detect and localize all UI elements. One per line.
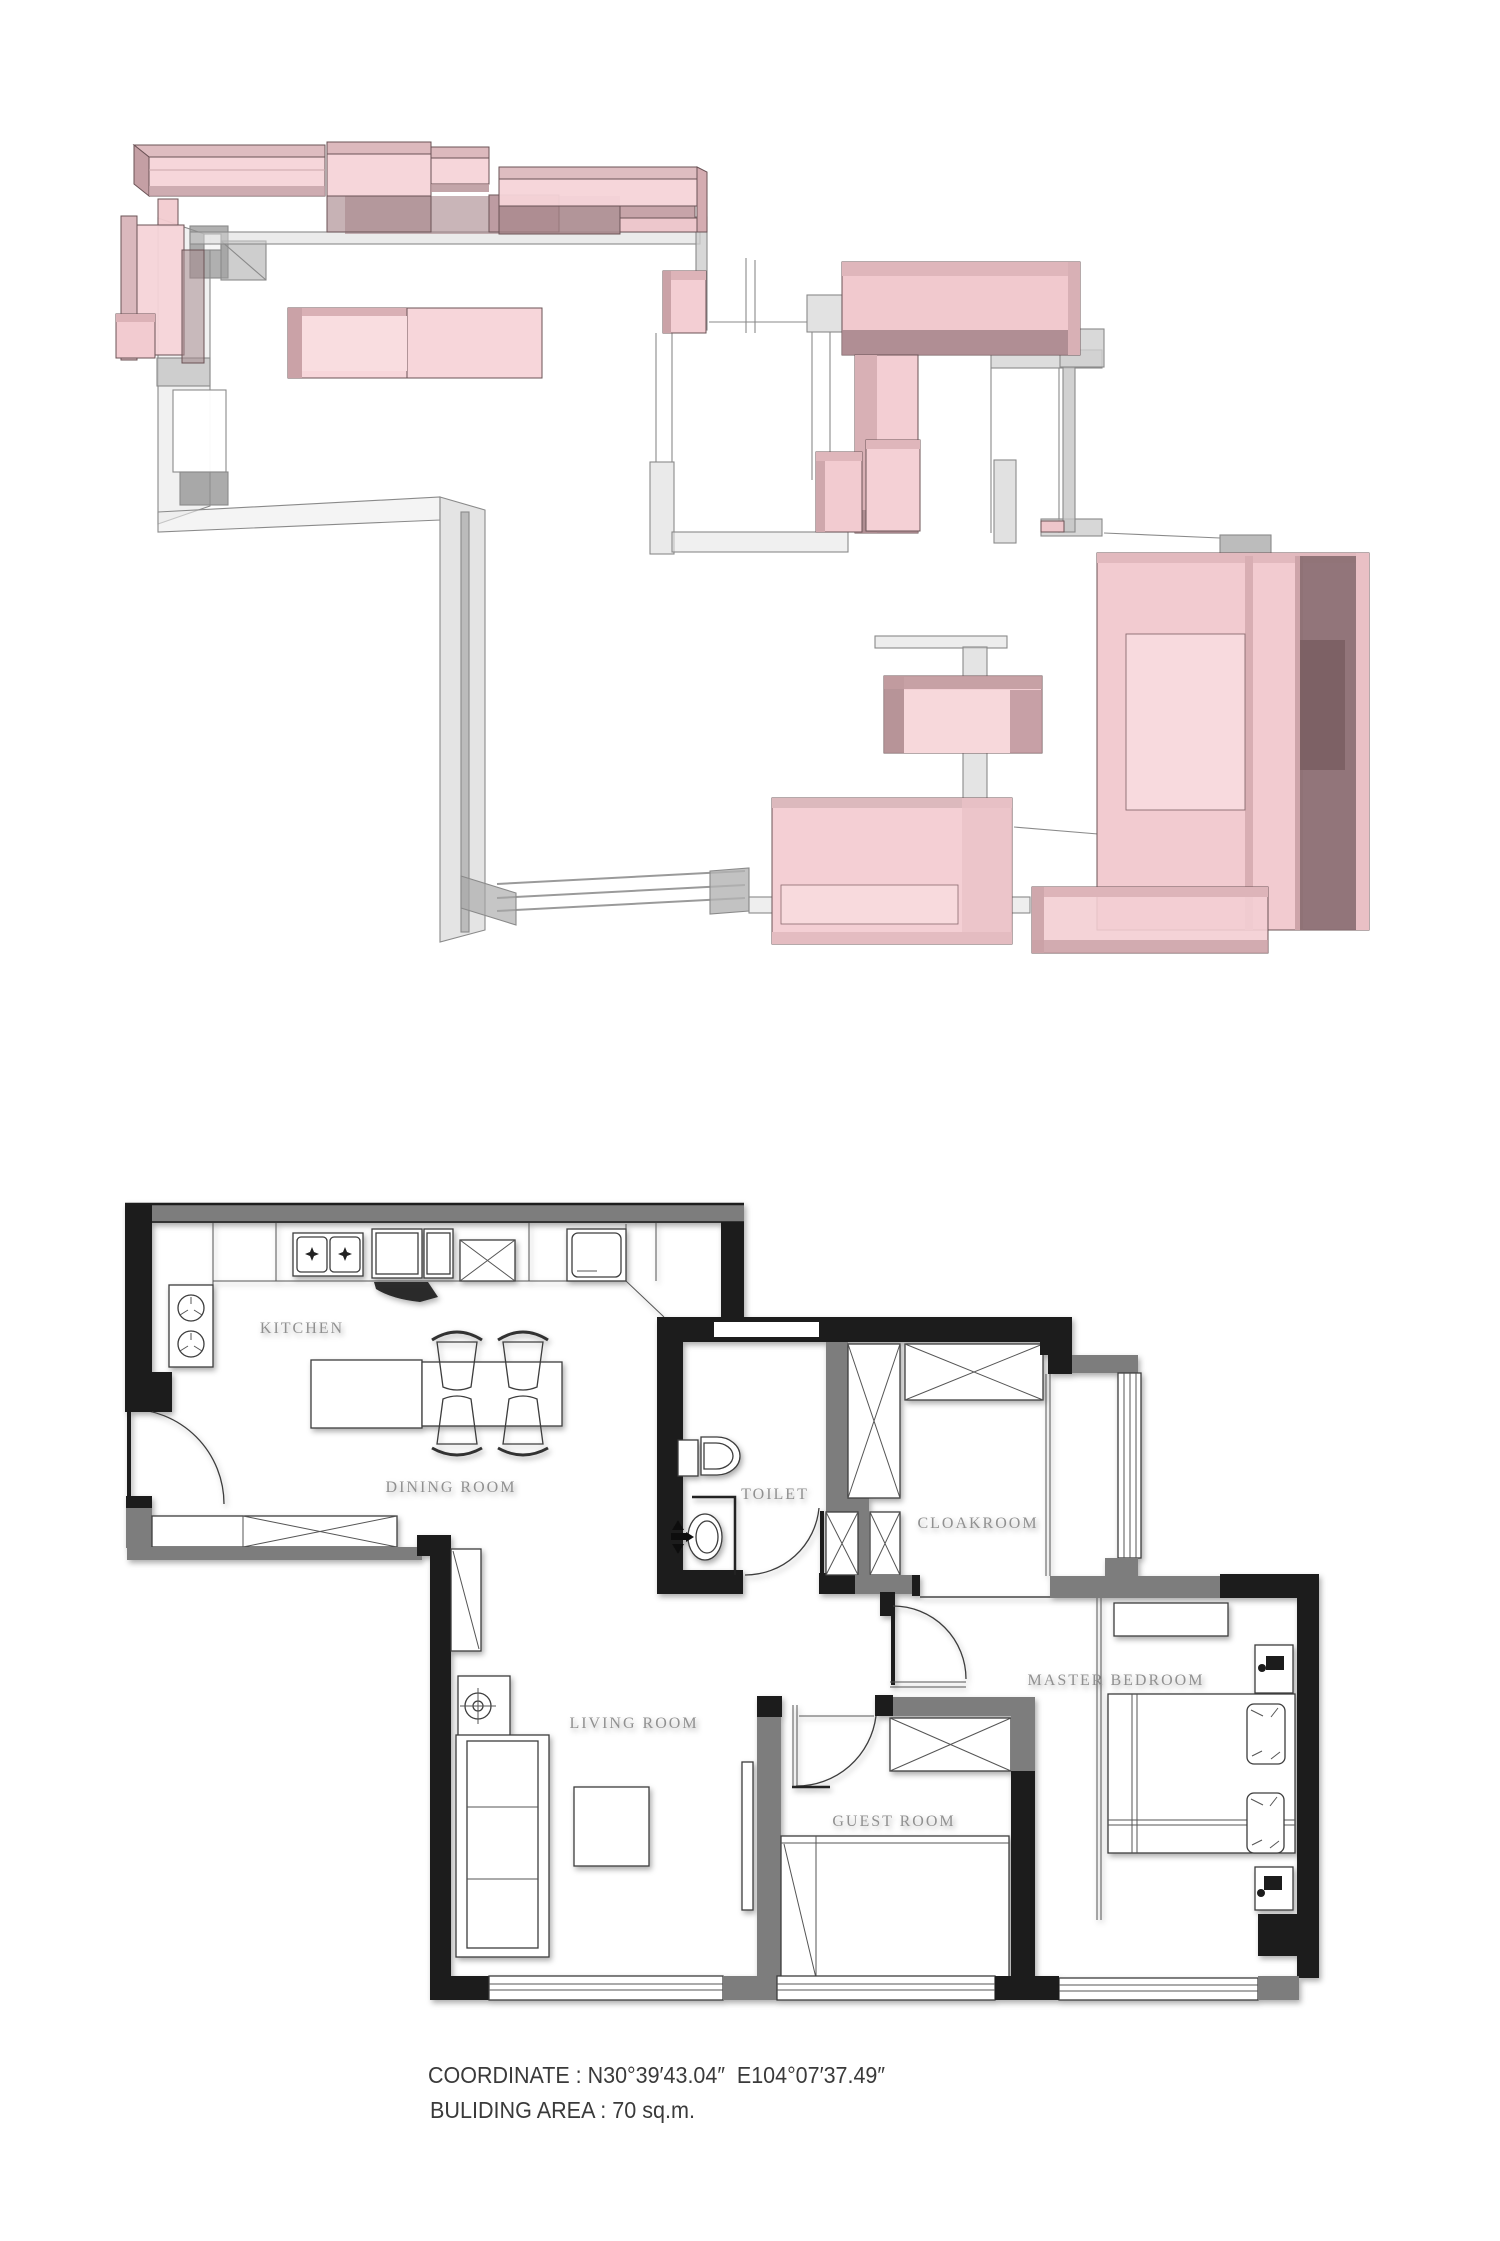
svg-text:DINING ROOM: DINING ROOM [386,1479,517,1496]
svg-text:CLOAKROOM: CLOAKROOM [917,1515,1038,1532]
svg-text:GUEST ROOM: GUEST ROOM [832,1813,955,1830]
svg-text:COORDINATE : N30°39′43.04″ E1: COORDINATE : N30°39′43.04″ E104°07′37.49… [428,2062,885,2088]
svg-text:BULIDING AREA : 70 sq.m.: BULIDING AREA : 70 sq.m. [430,2097,695,2123]
svg-text:KITCHEN: KITCHEN [260,1320,344,1337]
svg-text:TOILET: TOILET [741,1486,809,1503]
svg-text:MASTER BEDROOM: MASTER BEDROOM [1028,1672,1205,1689]
svg-text:LIVING ROOM: LIVING ROOM [569,1715,698,1732]
